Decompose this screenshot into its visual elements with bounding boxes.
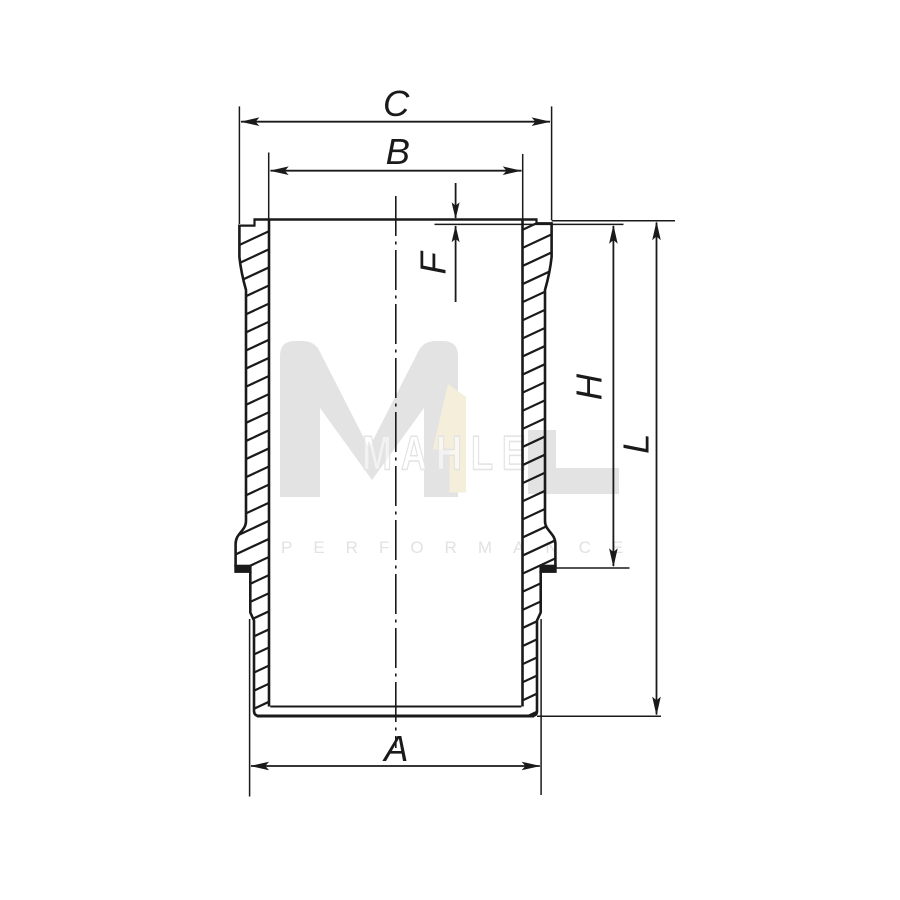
- svg-text:L: L: [616, 434, 657, 454]
- svg-text:MAHLE: MAHLE: [362, 427, 535, 480]
- svg-text:PERFORMANCE: PERFORMANCE: [281, 538, 644, 557]
- svg-text:C: C: [383, 83, 410, 124]
- svg-text:F: F: [413, 250, 454, 274]
- svg-text:A: A: [382, 728, 408, 769]
- svg-text:B: B: [386, 131, 410, 172]
- svg-text:H: H: [569, 373, 610, 400]
